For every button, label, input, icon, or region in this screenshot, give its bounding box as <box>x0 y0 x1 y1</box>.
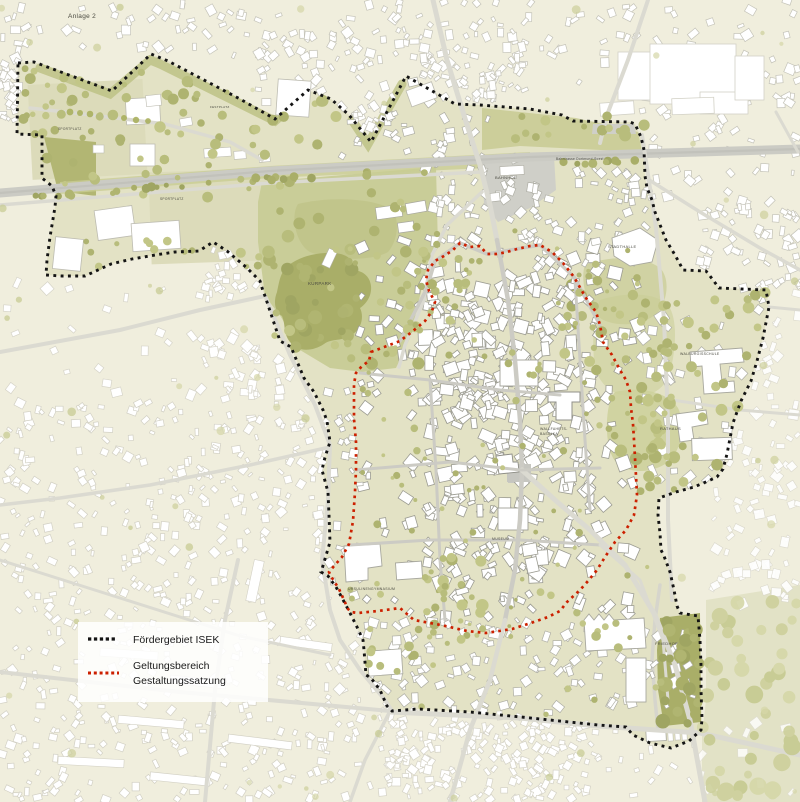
svg-text:WALLFAHRTS-: WALLFAHRTS- <box>540 427 568 431</box>
svg-text:URSULINENGYMNASIUM: URSULINENGYMNASIUM <box>348 587 395 591</box>
svg-text:RATHAUS: RATHAUS <box>660 426 681 431</box>
svg-text:BASILIKA: BASILIKA <box>540 432 558 436</box>
svg-text:STADTHALLE: STADTHALLE <box>608 244 637 249</box>
svg-text:FESTPLATZ: FESTPLATZ <box>210 105 229 109</box>
svg-text:Bahntrasse Dortmund-Soest: Bahntrasse Dortmund-Soest <box>556 157 604 161</box>
svg-text:SPORTPLATZ: SPORTPLATZ <box>160 197 184 201</box>
svg-text:Gestaltungssatzung: Gestaltungssatzung <box>133 675 226 687</box>
svg-text:Geltungsbereich: Geltungsbereich <box>133 660 210 672</box>
svg-text:Fördergebiet ISEK: Fördergebiet ISEK <box>133 634 219 646</box>
svg-text:MUSEUM: MUSEUM <box>492 537 509 541</box>
svg-text:KURPARK: KURPARK <box>308 281 332 286</box>
svg-text:SPORTPLATZ: SPORTPLATZ <box>58 127 82 131</box>
svg-text:FRIEDHOF: FRIEDHOF <box>655 641 678 646</box>
svg-text:WALBURGISSCHULE: WALBURGISSCHULE <box>680 352 720 356</box>
svg-text:Anlage 2: Anlage 2 <box>68 13 96 20</box>
svg-text:BAHNHOF: BAHNHOF <box>495 175 517 180</box>
